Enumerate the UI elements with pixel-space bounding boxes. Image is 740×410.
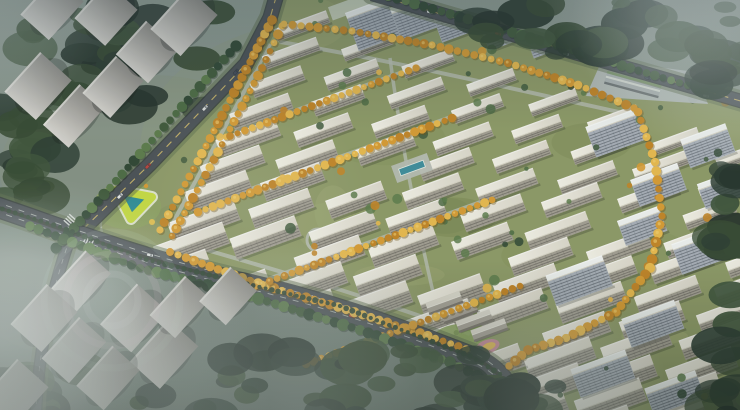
color-cast-overlay	[0, 0, 740, 410]
aerial-masterplan-render	[0, 0, 740, 410]
render-canvas	[0, 0, 740, 410]
